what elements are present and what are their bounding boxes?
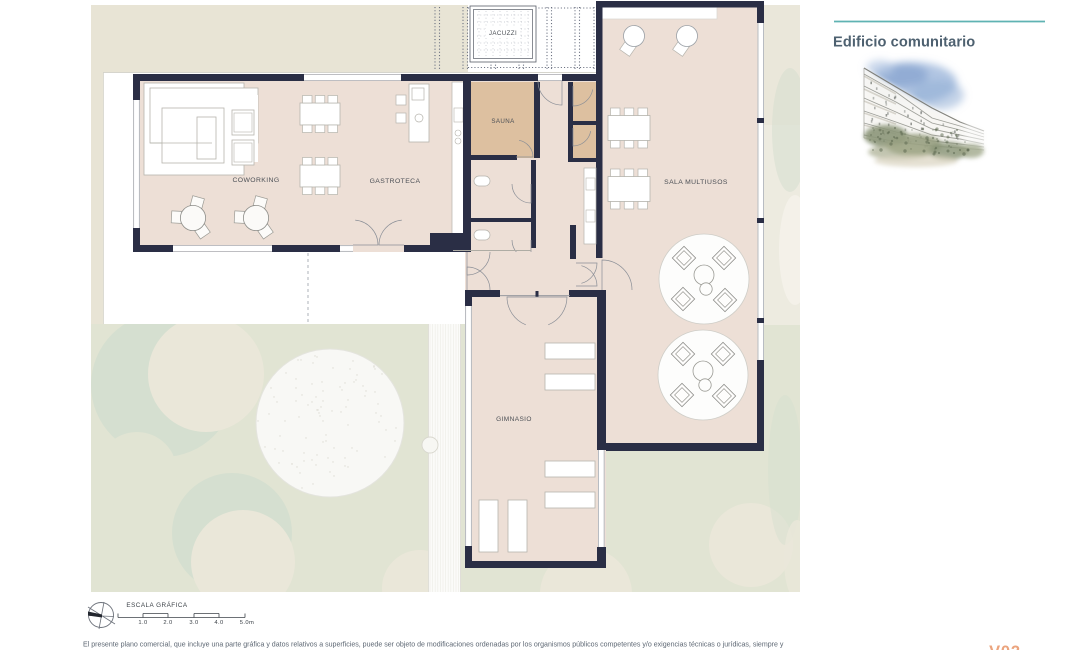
svg-text:V02: V02 bbox=[989, 643, 1021, 650]
svg-text:4.0: 4.0 bbox=[214, 620, 223, 626]
svg-text:GASTROTECA: GASTROTECA bbox=[370, 178, 421, 185]
svg-text:2.0: 2.0 bbox=[163, 620, 172, 626]
svg-text:3.0: 3.0 bbox=[189, 620, 198, 626]
svg-text:Edificio comunitario: Edificio comunitario bbox=[833, 35, 975, 51]
svg-text:SAUNA: SAUNA bbox=[491, 118, 515, 125]
svg-text:COWORKING: COWORKING bbox=[232, 177, 279, 184]
svg-text:El presente plano comercial, q: El presente plano comercial, que incluye… bbox=[83, 642, 784, 649]
svg-text:1.0: 1.0 bbox=[138, 620, 147, 626]
svg-text:JACUZZI: JACUZZI bbox=[489, 30, 517, 37]
svg-text:ESCALA GRÁFICA: ESCALA GRÁFICA bbox=[126, 600, 188, 609]
svg-text:5.0m: 5.0m bbox=[240, 620, 255, 626]
svg-text:GIMNASIO: GIMNASIO bbox=[496, 416, 532, 423]
svg-text:SALA MULTIUSOS: SALA MULTIUSOS bbox=[664, 179, 728, 186]
